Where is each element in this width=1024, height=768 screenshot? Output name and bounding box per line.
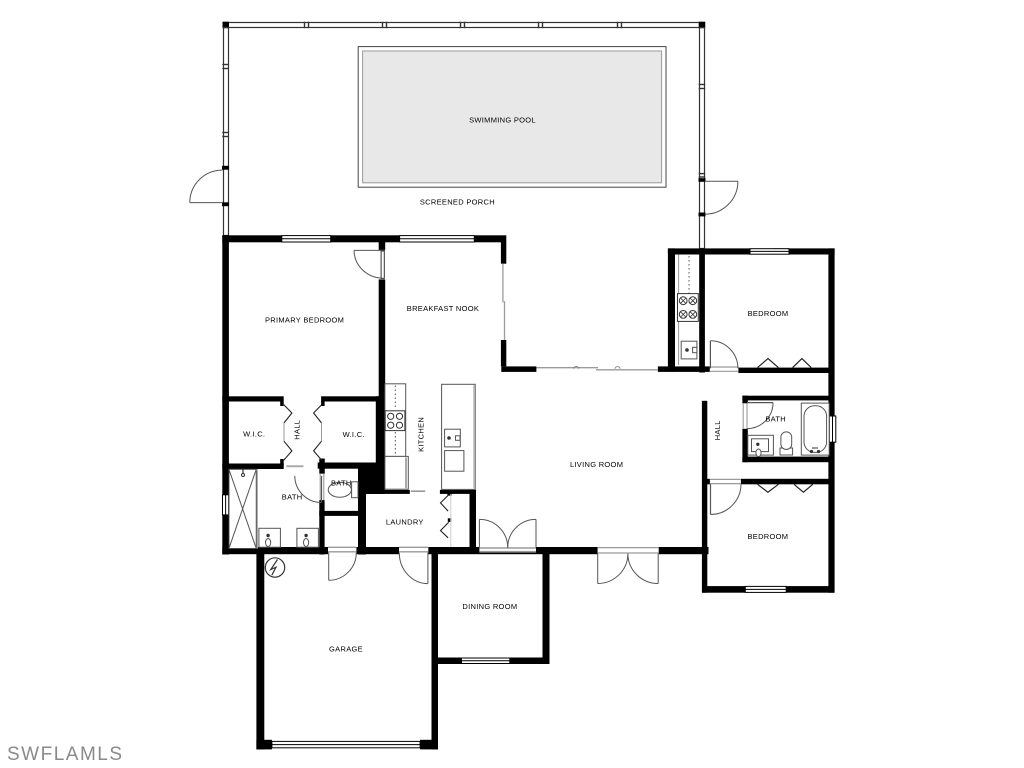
svg-text:W.I.C.: W.I.C. [243, 430, 265, 439]
svg-text:LIVING ROOM: LIVING ROOM [570, 460, 623, 469]
svg-text:PRIMARY BEDROOM: PRIMARY BEDROOM [265, 316, 344, 325]
svg-text:W.I.C.: W.I.C. [343, 430, 365, 439]
svg-text:LAUNDRY: LAUNDRY [386, 517, 424, 526]
svg-text:SWFLAMLS: SWFLAMLS [7, 744, 124, 765]
svg-text:KITCHEN: KITCHEN [416, 417, 425, 452]
svg-text:BREAKFAST NOOK: BREAKFAST NOOK [407, 304, 479, 313]
svg-text:BEDROOM: BEDROOM [748, 309, 789, 318]
svg-text:BATH: BATH [282, 492, 303, 501]
svg-text:HALL: HALL [292, 420, 301, 440]
svg-text:BATH: BATH [765, 414, 786, 423]
svg-text:SWIMMING POOL: SWIMMING POOL [469, 116, 536, 125]
svg-text:BATH: BATH [331, 479, 352, 488]
svg-text:GARAGE: GARAGE [329, 644, 363, 653]
svg-text:SCREENED PORCH: SCREENED PORCH [420, 198, 495, 207]
svg-text:BEDROOM: BEDROOM [747, 532, 788, 541]
svg-text:HALL: HALL [713, 420, 722, 440]
svg-text:DINING ROOM: DINING ROOM [462, 602, 517, 611]
